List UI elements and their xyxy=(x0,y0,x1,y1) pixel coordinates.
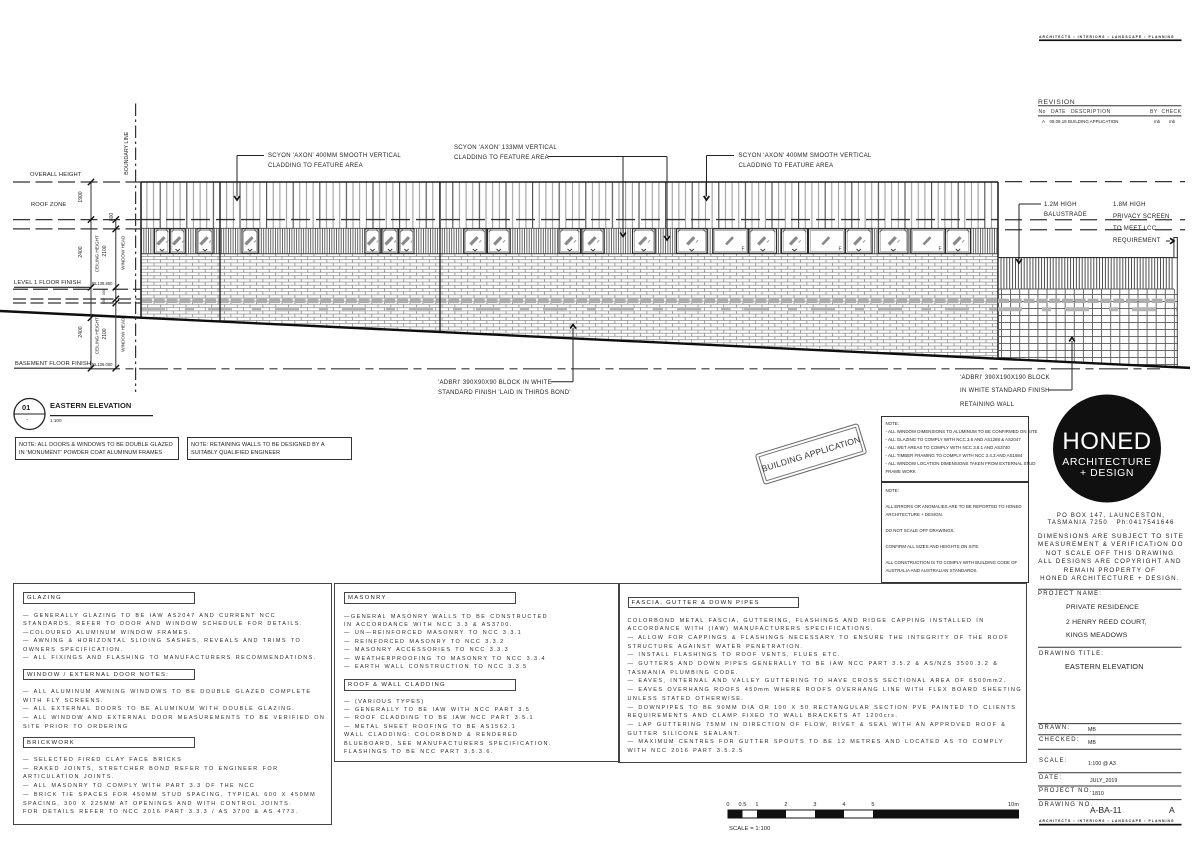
svg-text:F: F xyxy=(939,247,942,253)
svg-text:F: F xyxy=(742,247,745,253)
svg-text:F: F xyxy=(839,247,842,253)
